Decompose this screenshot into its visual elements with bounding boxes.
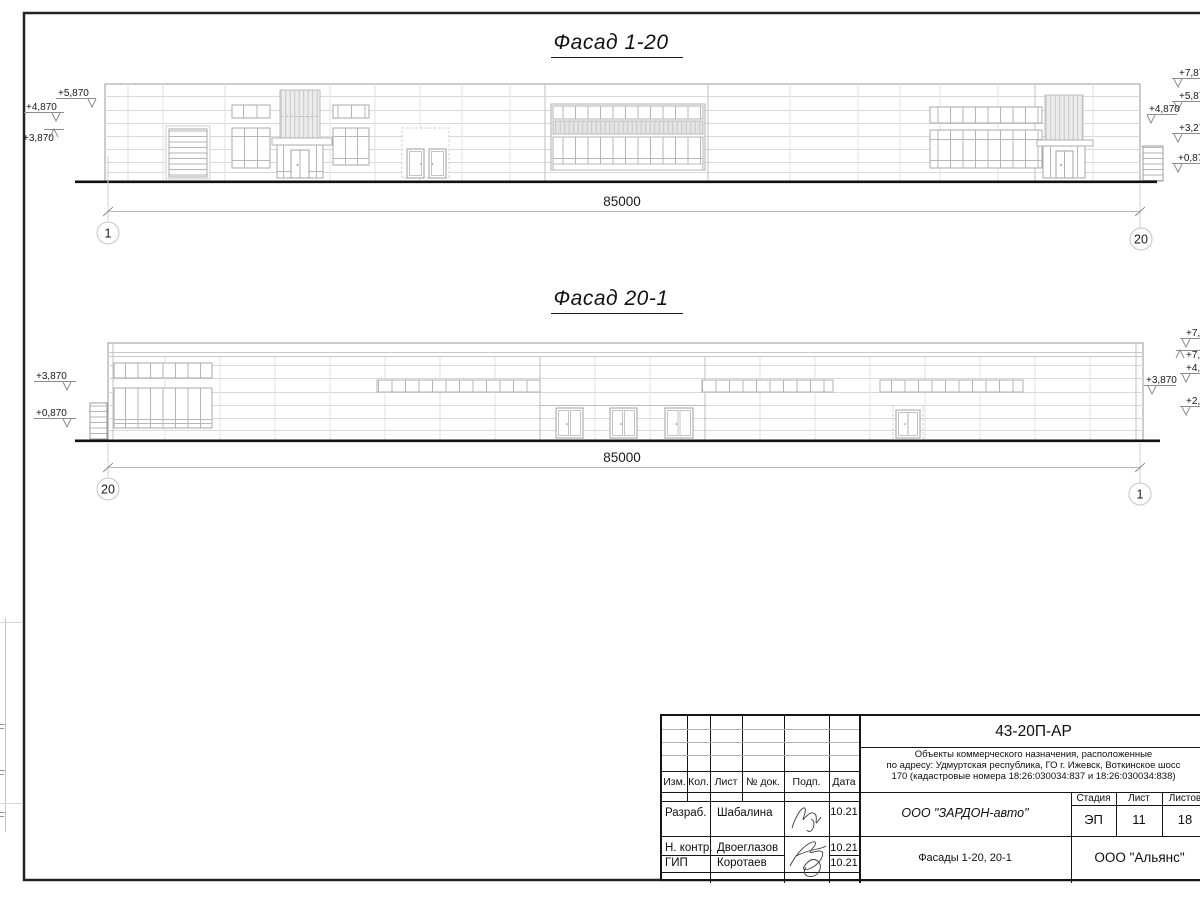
- elevation-mark-icon: [52, 113, 60, 121]
- double-door: [665, 408, 693, 438]
- axis-number-left: 1: [105, 227, 112, 241]
- elevation-mark-icon: [1176, 350, 1184, 358]
- drawing-sheet: { "colors": { "line_dark": "#161616", "l…: [0, 0, 1200, 900]
- central-entry-recess: [540, 405, 705, 440]
- left-edge-fragment: [0, 618, 23, 832]
- facade1-title: Фасад 1-20: [0, 31, 1200, 58]
- sheet-number: 11: [1116, 810, 1162, 830]
- elevation-label: +4,870: [1149, 104, 1180, 115]
- column-header-data: Дата: [829, 776, 859, 790]
- stage-label: Стадия: [1071, 794, 1116, 805]
- client-organization: ООО "ЗАРДОН-авто": [859, 806, 1071, 822]
- row-role: ГИП: [665, 857, 711, 870]
- roller-door-left: [166, 126, 210, 179]
- column-header-podp: Подп.: [784, 776, 829, 790]
- axis-number-left: 20: [101, 483, 115, 497]
- louver-box-left: [90, 403, 107, 439]
- elevation-label: +3,870: [1146, 375, 1177, 386]
- left-window-block: [114, 363, 212, 428]
- project-description-line2: по адресу: Удмуртская республика, ГО г. …: [859, 760, 1200, 771]
- sheet-title: Фасады 1-20, 20-1: [859, 852, 1071, 866]
- row-role: Н. контр.: [665, 842, 711, 855]
- facade2-title: Фасад 20-1: [0, 287, 1200, 314]
- elevation-label: +2,1: [1186, 396, 1200, 407]
- row-date: 10.21: [829, 857, 859, 870]
- project-description-line3: 170 (кадастровые номера 18:26:030034:837…: [859, 771, 1200, 782]
- title-block: Изм. Кол. Лист № док. Подп. Дата Разраб.…: [660, 714, 1200, 881]
- row-name: Двоеглазов: [717, 842, 783, 855]
- elevation-mark-icon: [1174, 79, 1182, 87]
- roller-door-right: [1140, 146, 1163, 181]
- facade1-dimension-text: 85000: [603, 194, 641, 209]
- elevation-label: +5,870: [58, 88, 89, 99]
- facade2-dimension-text: 85000: [603, 450, 641, 465]
- fin-panel-b: [1045, 95, 1083, 140]
- sheets-label: Листов: [1162, 794, 1200, 805]
- elevation-label: +3,870: [23, 133, 54, 144]
- double-door: [610, 408, 637, 438]
- elevation-mark-icon: [1174, 134, 1182, 142]
- elevation-mark-icon: [1174, 164, 1182, 172]
- elevation-label: +7,: [1186, 350, 1200, 361]
- row-date: 10.21: [829, 806, 859, 820]
- contractor-firm: ООО "Альянс": [1071, 850, 1200, 867]
- elevation-mark-icon: [63, 382, 71, 390]
- window-block-b: [333, 105, 369, 165]
- column-header-izm: Изм.: [662, 776, 687, 790]
- elevation-label: +7,8: [1186, 328, 1200, 339]
- elevation-label: +7,87: [1179, 68, 1200, 79]
- row-name: Коротаев: [717, 857, 783, 870]
- elevation-mark-icon: [1148, 386, 1156, 394]
- elevation-mark-icon: [1182, 339, 1190, 347]
- elevation-label: +3,870: [36, 371, 67, 382]
- elevation-mark-icon: [88, 99, 96, 107]
- sheets-total: 18: [1162, 810, 1200, 830]
- window-band-right: [930, 107, 1042, 168]
- entrance-a: [272, 138, 332, 178]
- service-doors: [402, 128, 449, 178]
- document-code: 43-20П-АР: [859, 722, 1200, 742]
- elevation-mark-icon: [1147, 115, 1155, 123]
- right-door: [893, 405, 923, 440]
- fin-panel-a: [280, 90, 320, 138]
- facade-1-20-drawing: 85000 1 20 +5,870 +4,870 +3,870 +7,87 +5…: [23, 68, 1200, 250]
- column-header-list: Лист: [710, 776, 742, 790]
- row-name: Шабалина: [717, 806, 783, 820]
- elevation-label: +4,870: [26, 102, 57, 113]
- row-role: Разраб.: [665, 806, 711, 820]
- stage-value: ЭП: [1071, 810, 1116, 830]
- column-header-doc: № док.: [742, 776, 784, 790]
- elevation-label: +0,870: [36, 408, 67, 419]
- elevation-mark-icon: [1182, 374, 1190, 382]
- central-storefront: [551, 104, 705, 170]
- entrance-b: [1037, 140, 1093, 178]
- project-description-line1: Объекты коммерческого назначения, распол…: [859, 749, 1200, 760]
- sheet-label: Лист: [1116, 794, 1162, 805]
- elevation-label: +5,87: [1179, 91, 1200, 102]
- elevation-mark-icon: [1182, 407, 1190, 415]
- axis-number-right: 1: [1137, 488, 1144, 502]
- elevation-label: +3,27: [1179, 123, 1200, 134]
- window-block-a: [232, 105, 270, 168]
- elevation-label: +4,8: [1186, 363, 1200, 374]
- double-door: [556, 408, 583, 438]
- facade-20-1-drawing: 85000 20 1 +3,870 +0,870 +7,8 +7, +4,8 +…: [34, 328, 1200, 505]
- facade2-dimension-axis: 85000 20 1: [97, 443, 1151, 505]
- axis-number-right: 20: [1134, 233, 1148, 247]
- elevation-mark-icon: [63, 419, 71, 427]
- elevation-label: +0,87: [1178, 153, 1200, 164]
- row-date: 10.21: [829, 842, 859, 855]
- column-header-kol: Кол.: [687, 776, 710, 790]
